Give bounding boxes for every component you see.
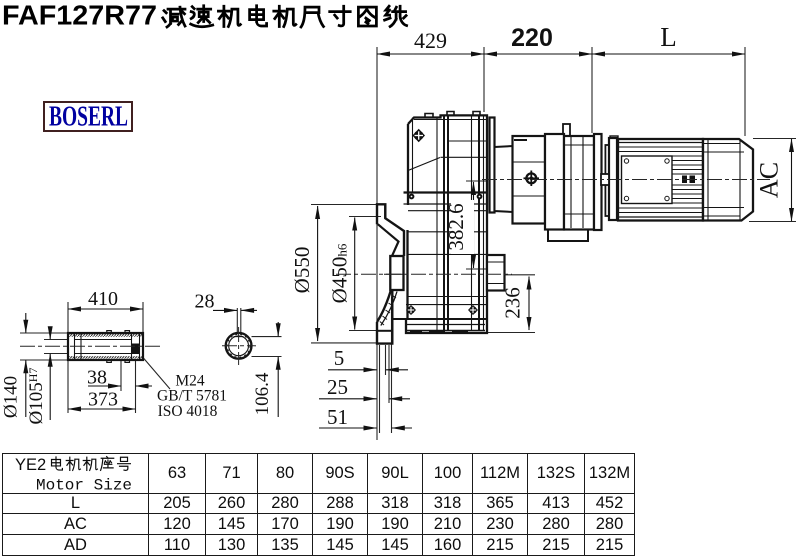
svg-text:25: 25	[327, 375, 348, 399]
svg-text:51: 51	[327, 405, 348, 429]
svg-text:Ø450h6: Ø450h6	[328, 243, 352, 303]
svg-text:382.6: 382.6	[444, 203, 468, 250]
svg-text:Ø140: Ø140	[1, 376, 22, 418]
svg-text:ISO 4018: ISO 4018	[158, 403, 218, 420]
svg-text:FAF127R77: FAF127R77	[2, 0, 157, 31]
svg-text:5: 5	[334, 346, 345, 370]
svg-text:220: 220	[511, 24, 553, 52]
svg-text:106.4: 106.4	[252, 372, 273, 415]
svg-text:373: 373	[88, 389, 118, 411]
svg-text:28: 28	[195, 291, 215, 313]
svg-text:L: L	[660, 22, 677, 52]
svg-text:GB/T 5781: GB/T 5781	[157, 388, 227, 405]
svg-text:236: 236	[501, 287, 525, 319]
svg-text:38: 38	[87, 367, 107, 389]
svg-text:Ø550: Ø550	[290, 247, 314, 294]
svg-text:Ø105H7: Ø105H7	[26, 368, 47, 425]
svg-text:410: 410	[88, 288, 118, 310]
svg-text:AC: AC	[755, 162, 784, 198]
